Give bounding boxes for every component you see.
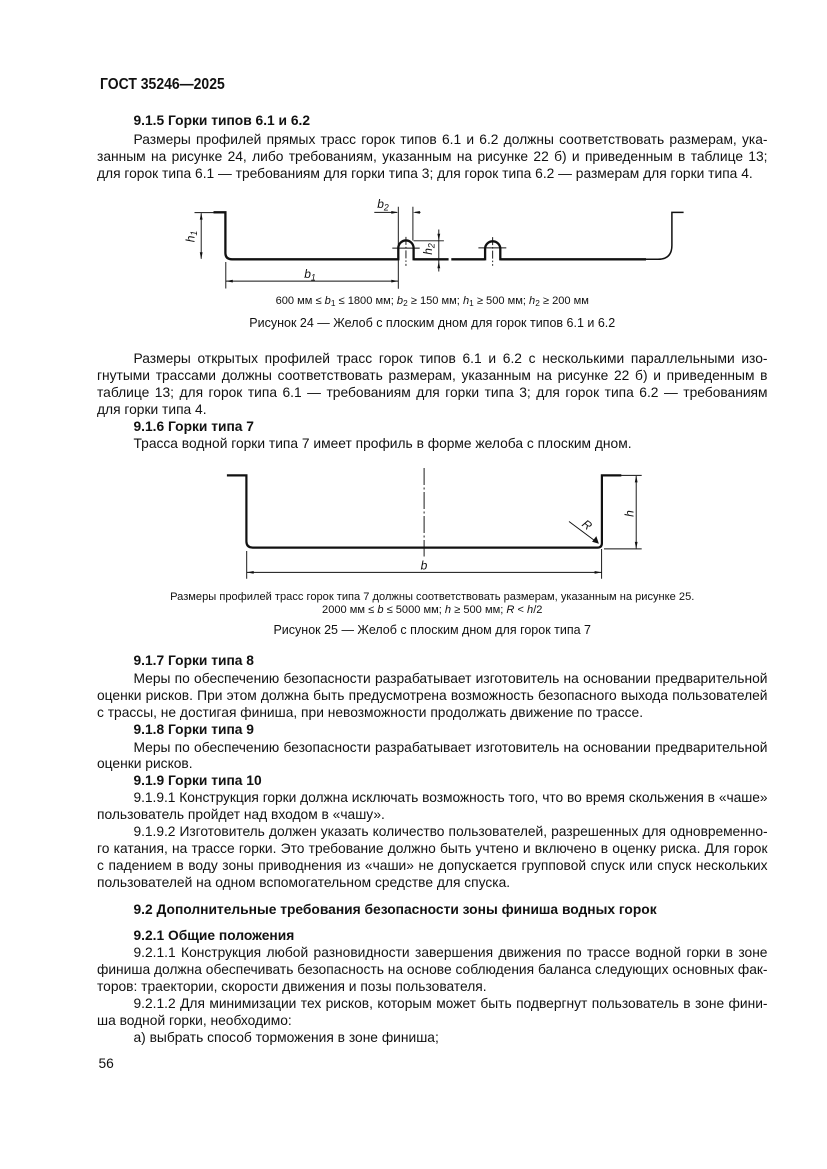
- svg-text:b2: b2: [377, 197, 389, 213]
- svg-text:b1: b1: [304, 267, 316, 283]
- svg-text:h2: h2: [421, 243, 437, 255]
- svg-text:b: b: [421, 559, 428, 573]
- svg-text:h: h: [623, 510, 637, 517]
- svg-text:h1: h1: [184, 231, 200, 243]
